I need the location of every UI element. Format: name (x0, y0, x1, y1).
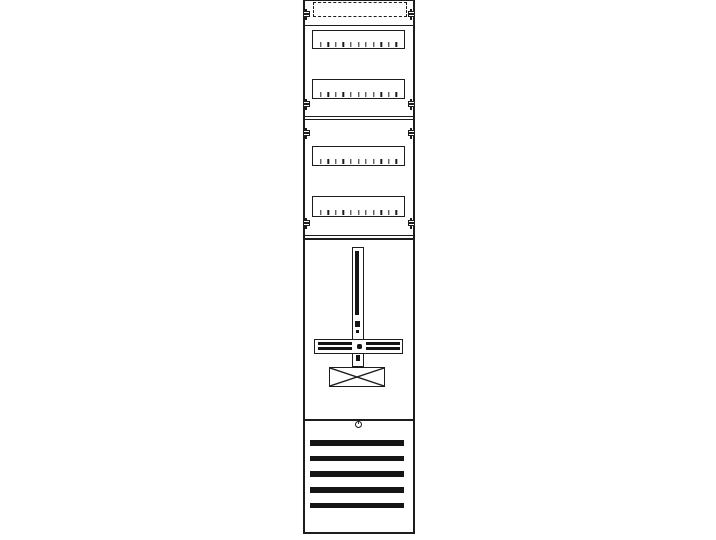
module-pitch-tick (396, 42, 397, 47)
cross-center-hole (357, 344, 362, 349)
module-pitch-tick (358, 92, 359, 97)
module-pitch-tick (327, 42, 328, 47)
din-module-row (312, 146, 405, 166)
module-pitch-tick (365, 42, 366, 47)
screw-tick (305, 226, 306, 228)
module-pitch-tick (343, 92, 344, 97)
module-pitch-tick (358, 159, 359, 164)
din-module-row (312, 196, 405, 217)
module-pitch-tick (320, 210, 321, 215)
module-pitch-tick (388, 210, 389, 215)
lock-pin-dot (358, 422, 360, 424)
module-pitch-tick (388, 159, 389, 164)
frame-left-edge (303, 0, 305, 534)
cover-joint-line (303, 116, 415, 117)
screw-tick (410, 9, 411, 11)
module-pitch-tick (358, 210, 359, 215)
screw-tick (410, 136, 411, 138)
module-pitch-tick (335, 210, 336, 215)
module-pitch-tick (350, 159, 351, 164)
din-row-ticks (313, 147, 404, 165)
screw-tick (410, 218, 411, 220)
screw-tick (305, 9, 306, 11)
module-pitch-tick (396, 159, 397, 164)
panel-drawing (303, 0, 415, 534)
vent-slat (310, 471, 404, 477)
vertical-rail-hole-dot (356, 330, 360, 333)
din-module-row (312, 79, 405, 99)
module-pitch-tick (388, 42, 389, 47)
module-pitch-tick (335, 159, 336, 164)
screw-tick (305, 99, 306, 101)
module-pitch-tick (396, 210, 397, 215)
module-pitch-tick (335, 92, 336, 97)
module-pitch-tick (381, 159, 382, 164)
vertical-rail-slot (355, 251, 359, 315)
screw-tick (305, 128, 306, 130)
vent-slat (310, 487, 404, 493)
terminal-block-box (329, 367, 385, 387)
module-pitch-tick (381, 210, 382, 215)
module-pitch-tick (350, 210, 351, 215)
screw-tick (410, 128, 411, 130)
din-module-row (312, 30, 405, 49)
module-pitch-tick (320, 42, 321, 47)
module-pitch-tick (343, 159, 344, 164)
cover-joint-line (303, 119, 415, 120)
frame-right-edge (413, 0, 415, 534)
module-pitch-tick (365, 92, 366, 97)
cover-joint-line (303, 238, 415, 239)
screw-tick (410, 17, 411, 19)
cover-lock-circle (355, 421, 362, 428)
module-pitch-tick (365, 210, 366, 215)
cover-joint-line (303, 235, 415, 236)
vent-slat (310, 440, 404, 446)
x-cross-marking-icon (330, 368, 384, 386)
module-pitch-tick (320, 92, 321, 97)
screw-tick (305, 136, 306, 138)
din-row-ticks (313, 31, 404, 48)
module-pitch-tick (365, 159, 366, 164)
vent-slat (310, 456, 404, 462)
module-pitch-tick (327, 92, 328, 97)
screw-tick (410, 99, 411, 101)
screw-tick (305, 218, 306, 220)
module-pitch-tick (343, 210, 344, 215)
module-pitch-tick (343, 42, 344, 47)
drawing-canvas (0, 0, 716, 540)
module-pitch-tick (396, 92, 397, 97)
module-pitch-tick (388, 92, 389, 97)
module-pitch-tick (373, 42, 374, 47)
din-row-ticks (313, 80, 404, 98)
module-pitch-tick (335, 42, 336, 47)
horizontal-rail-slot (366, 347, 400, 350)
cover-top-joint-line (303, 25, 415, 27)
frame-bottom-edge (303, 532, 415, 534)
horizontal-rail-slot (318, 347, 352, 350)
module-pitch-tick (350, 42, 351, 47)
module-pitch-tick (381, 42, 382, 47)
module-pitch-tick (327, 159, 328, 164)
horizontal-rail-slot (318, 342, 352, 345)
module-pitch-tick (350, 92, 351, 97)
module-pitch-tick (373, 92, 374, 97)
module-pitch-tick (358, 42, 359, 47)
dashed-cutout (313, 2, 407, 17)
lower-rail-mark (356, 355, 360, 361)
module-pitch-tick (327, 210, 328, 215)
horizontal-rail-slot (366, 342, 400, 345)
module-pitch-tick (373, 210, 374, 215)
module-pitch-tick (320, 159, 321, 164)
screw-tick (305, 107, 306, 109)
din-row-ticks (313, 197, 404, 216)
vent-slat (310, 503, 404, 509)
module-pitch-tick (381, 92, 382, 97)
vertical-rail-hole-square (355, 321, 360, 327)
screw-tick (305, 17, 306, 19)
module-pitch-tick (373, 159, 374, 164)
screw-tick (410, 107, 411, 109)
screw-tick (410, 226, 411, 228)
